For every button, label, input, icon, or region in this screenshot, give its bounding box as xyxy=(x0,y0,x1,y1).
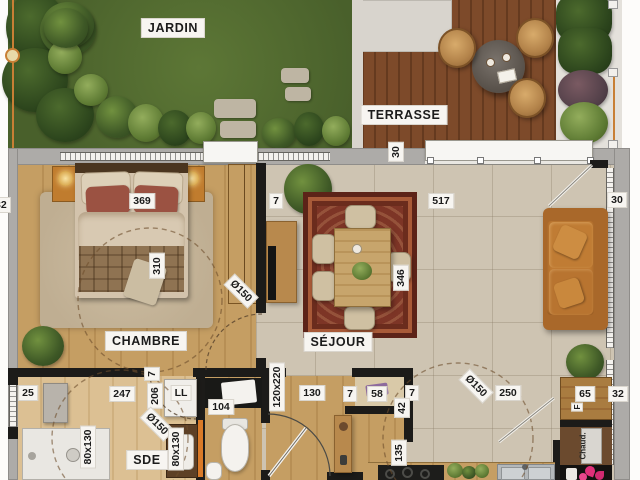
dim-shower-size: 80x130 xyxy=(80,425,96,468)
floor-plan: Chaud. JARDIN TERRASSE CHAMBRE SÉJOUR SD… xyxy=(0,0,640,480)
dim-sde-depth: 206 xyxy=(147,383,163,409)
fridge-label: F xyxy=(571,402,583,411)
dim-left-ledge: 25 xyxy=(18,385,38,401)
dim-fridge-width: 65 xyxy=(575,386,595,402)
dim-top-window: 30 xyxy=(388,142,404,162)
room-label-sejour: SÉJOUR xyxy=(303,332,372,352)
dim-wc-width: 104 xyxy=(208,399,234,415)
dim-kitchen-return: 135 xyxy=(391,440,407,466)
dim-hall-width: 130 xyxy=(299,385,325,401)
washer-label: LL xyxy=(171,385,192,401)
dim-kitchen-width: 250 xyxy=(495,385,521,401)
dim-sejour-depth: 346 xyxy=(393,265,409,291)
dim-door-size: 120x220 xyxy=(269,363,285,412)
dim-closet-width: 58 xyxy=(367,386,387,402)
annotation-lines xyxy=(0,0,640,480)
dim-wall: 7 xyxy=(144,367,160,381)
dim-sejour-width: 517 xyxy=(428,193,454,209)
dim-right-wall: 32 xyxy=(608,386,628,402)
dim-chambre-depth: 310 xyxy=(149,253,165,279)
room-label-jardin: JARDIN xyxy=(141,18,205,38)
dim-closet-depth: 42 xyxy=(394,398,410,418)
water-heater-label: Chaud. xyxy=(579,432,588,459)
dim-wall: 7 xyxy=(343,386,357,402)
dim-wall: 7 xyxy=(269,193,283,209)
dim-right-window: 30 xyxy=(607,192,627,208)
room-label-terrasse: TERRASSE xyxy=(361,105,448,125)
dim-left-wall: 32 xyxy=(0,197,11,213)
room-label-sde: SDE xyxy=(126,450,168,470)
dim-chambre-width: 369 xyxy=(129,193,155,209)
dim-vanity-size: 80x130 xyxy=(168,427,184,470)
room-label-chambre: CHAMBRE xyxy=(105,331,187,351)
dim-sde-width: 247 xyxy=(109,386,135,402)
